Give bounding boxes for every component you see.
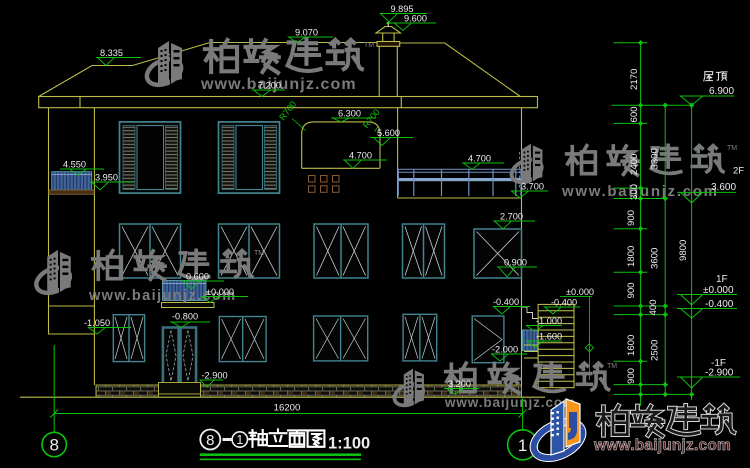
svg-text:0.900: 0.900: [504, 258, 527, 268]
svg-text:2F: 2F: [733, 166, 744, 177]
svg-text:0.600: 0.600: [186, 272, 209, 282]
svg-text:2.700: 2.700: [500, 212, 523, 222]
svg-text:3.950: 3.950: [95, 173, 118, 183]
svg-text:6.300: 6.300: [338, 109, 361, 119]
svg-text:400: 400: [648, 299, 659, 315]
svg-text:6.900: 6.900: [709, 86, 734, 97]
svg-text:-1.000: -1.000: [536, 316, 562, 326]
svg-text:1600: 1600: [626, 335, 637, 356]
svg-text:-0.400: -0.400: [705, 299, 734, 310]
svg-text:2170: 2170: [629, 69, 640, 90]
svg-text:4.550: 4.550: [63, 160, 86, 170]
svg-text:3.600: 3.600: [711, 182, 736, 193]
svg-text:1: 1: [518, 436, 527, 455]
svg-text:900: 900: [626, 282, 637, 298]
svg-text:9.070: 9.070: [295, 28, 318, 38]
svg-text:TM: TM: [727, 145, 737, 152]
svg-text:900: 900: [626, 368, 637, 384]
svg-text:±0.000: ±0.000: [566, 287, 594, 297]
svg-text:2500: 2500: [650, 340, 661, 361]
svg-text:300: 300: [629, 184, 640, 200]
svg-text:9.600: 9.600: [404, 14, 427, 24]
svg-text:9.895: 9.895: [391, 4, 414, 14]
svg-text:1: 1: [236, 433, 243, 447]
svg-text:-0.400: -0.400: [493, 297, 519, 307]
svg-text:TM: TM: [607, 363, 617, 370]
svg-text:1F: 1F: [716, 274, 728, 285]
svg-text:8: 8: [49, 436, 58, 455]
svg-text:16200: 16200: [274, 403, 301, 414]
svg-text:3600: 3600: [650, 248, 661, 269]
svg-text:±0.000: ±0.000: [703, 285, 734, 296]
svg-text:TM: TM: [364, 42, 374, 49]
svg-text:1:100: 1:100: [328, 435, 370, 453]
svg-text:-0.800: -0.800: [172, 312, 198, 322]
svg-text:-1.050: -1.050: [84, 318, 110, 328]
svg-text:2400: 2400: [629, 154, 640, 175]
svg-text:-2.000: -2.000: [492, 345, 518, 355]
svg-text:8.335: 8.335: [100, 48, 123, 58]
svg-text:-2.900: -2.900: [705, 367, 734, 378]
svg-text:3.700: 3.700: [521, 182, 544, 192]
svg-text:3.200: 3.200: [448, 379, 471, 389]
svg-text:7.200: 7.200: [258, 81, 281, 91]
svg-text:5.600: 5.600: [377, 128, 400, 138]
svg-text:TM: TM: [254, 250, 264, 257]
svg-text:4.700: 4.700: [349, 151, 372, 161]
svg-text:www.baijunjz.com: www.baijunjz.com: [593, 437, 731, 454]
svg-text:3300: 3300: [650, 148, 661, 169]
svg-text:900: 900: [626, 210, 637, 226]
svg-text:1800: 1800: [626, 246, 637, 267]
svg-text:600: 600: [629, 106, 640, 122]
svg-text:±0.000: ±0.000: [206, 287, 234, 297]
svg-text:9800: 9800: [678, 240, 689, 261]
svg-text:-1.600: -1.600: [536, 332, 562, 342]
svg-text:-0.400: -0.400: [551, 298, 577, 308]
svg-text:-2.900: -2.900: [202, 371, 228, 381]
svg-text:8: 8: [206, 432, 214, 449]
svg-text:4.700: 4.700: [468, 154, 491, 164]
